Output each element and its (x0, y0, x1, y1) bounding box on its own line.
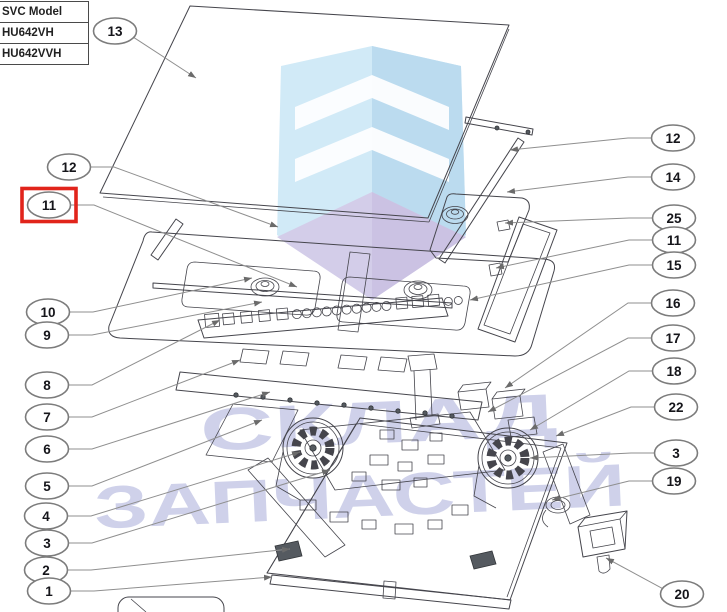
bottom-cutoff-part (118, 597, 224, 612)
callout-22-right[interactable]: 22 (556, 394, 698, 436)
callout-number: 15 (666, 258, 682, 273)
callout-14-right[interactable]: 14 (507, 164, 695, 192)
callout-number: 14 (665, 170, 681, 185)
callout-number: 25 (666, 211, 682, 226)
callout-number: 8 (43, 378, 51, 393)
model-table: SVC Model HU642VH HU642VVH (0, 1, 89, 65)
callout-number: 16 (665, 296, 681, 311)
callout-12-right[interactable]: 12 (510, 125, 695, 151)
callout-2-left[interactable]: 2 (25, 549, 291, 583)
callout-number: 12 (61, 160, 76, 175)
callout-number: 11 (42, 198, 57, 213)
callout-number: 22 (668, 400, 683, 415)
callout-number: 5 (43, 479, 51, 494)
leader-line (606, 558, 663, 589)
leader-line (507, 177, 652, 192)
model-table-row: HU642VVH (0, 44, 88, 64)
callout-number: 17 (665, 331, 680, 346)
model-table-row: HU642VH (0, 23, 88, 44)
parts-diagram-page: СКЛАД ЗАПЧАСТЕЙ (0, 0, 727, 612)
leader-line (70, 577, 272, 591)
callout-number: 18 (666, 364, 682, 379)
model-table-header: SVC Model (0, 2, 88, 23)
callout-number: 11 (667, 233, 682, 248)
leader-line (510, 138, 652, 150)
leader-line (556, 407, 655, 436)
callout-number: 1 (45, 584, 53, 599)
callout-number: 9 (43, 328, 51, 343)
leader-line (67, 549, 290, 570)
callout-number: 6 (43, 442, 51, 457)
callout-number: 3 (43, 536, 51, 551)
callout-number: 13 (107, 24, 123, 39)
callout-number: 19 (666, 474, 681, 489)
exploded-parts-diagram: СКЛАД ЗАПЧАСТЕЙ (0, 0, 727, 612)
callout-number: 20 (674, 587, 689, 602)
watermark-text-line2: ЗАПЧАСТЕЙ (93, 451, 627, 541)
callout-number: 7 (43, 410, 51, 425)
callout-number: 4 (42, 509, 50, 524)
callout-number: 10 (40, 305, 55, 320)
callout-number: 12 (665, 131, 680, 146)
callout-20-right[interactable]: 20 (606, 558, 704, 607)
callout-number: 3 (672, 446, 680, 461)
callout-number: 2 (42, 563, 50, 578)
callout-1-left[interactable]: 1 (28, 577, 273, 604)
